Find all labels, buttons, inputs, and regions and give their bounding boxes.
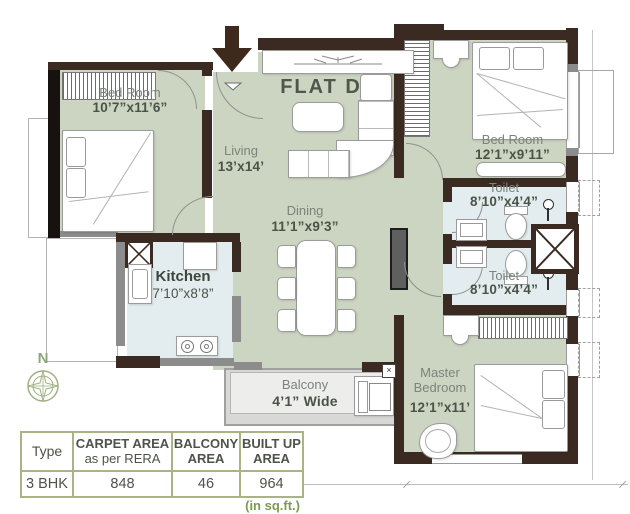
duct-x-icon: ×: [382, 364, 396, 378]
floor-plan: × FLAT D Bed Room 10’7”x11’6” Living 13’…: [0, 0, 630, 514]
kitchen-label: Kitchen: [138, 268, 228, 285]
shaft-x-icon: [531, 224, 579, 274]
wall-segment: [116, 242, 125, 346]
bedroom2-label: Bed Room: [455, 133, 570, 147]
north-label: N: [30, 350, 56, 367]
value-balcony-area: 46: [173, 472, 241, 496]
header-builtup-line2: AREA: [253, 452, 290, 467]
wall-segment: [234, 362, 262, 370]
header-builtup-line1: BUILT UP: [242, 437, 301, 452]
pillow: [513, 47, 544, 70]
dresser: [443, 315, 479, 336]
master-bedroom-label2: Bedroom: [398, 381, 482, 395]
wash-basin: [456, 219, 487, 241]
value-builtup-area: 964: [241, 472, 302, 496]
dimension-line: [290, 484, 628, 485]
wall-segment: [48, 62, 60, 238]
wardrobe: [478, 317, 568, 339]
exterior-ledge: [28, 118, 50, 238]
chair: [337, 245, 356, 268]
pillow: [66, 137, 86, 167]
bedroom1-label: Bed Room: [60, 86, 200, 100]
shelf-ledge: [476, 162, 566, 177]
plant-icon: [264, 54, 412, 68]
wall-segment: [232, 242, 241, 272]
compass-icon: [25, 368, 61, 404]
area-table-header-row: Type CARPET AREA as per RERA BALCONY ARE…: [22, 433, 302, 470]
living-label: Living: [196, 144, 286, 158]
door-swing-marker: [224, 78, 242, 87]
dresser: [433, 40, 469, 59]
refrigerator: [183, 242, 217, 270]
chair: [337, 277, 356, 300]
unit-footnote: (in sq.ft.): [198, 498, 300, 513]
stove-icon: [176, 336, 218, 356]
wall-segment: [48, 62, 196, 70]
chair: [277, 277, 296, 300]
sliding-door-panel: [390, 228, 408, 290]
balcony-label: Balcony: [250, 378, 360, 392]
area-table-data-row: 3 BHK 848 46 964: [22, 470, 302, 496]
chair: [277, 309, 296, 332]
flat-title: FLAT D: [258, 76, 384, 99]
wall-segment: [258, 38, 414, 50]
dining-table: [296, 240, 336, 336]
wash-basin: [456, 246, 487, 268]
dining-dims: 11’1”x9’3”: [260, 219, 350, 234]
coffee-table: [292, 102, 344, 132]
value-carpet-area: 848: [74, 472, 173, 496]
value-type: 3 BHK: [22, 472, 74, 496]
master-bedroom-label: Master: [398, 366, 482, 380]
pillow: [66, 168, 86, 198]
balcony-dims: 4’1” Wide: [250, 393, 360, 409]
pillow: [542, 400, 565, 429]
entrance-arrow-icon: [212, 26, 252, 74]
sofa: [288, 150, 350, 178]
toilet2-dims: 8’10”x4’4”: [452, 282, 556, 297]
shower-icon: [547, 208, 549, 221]
wall-segment: [232, 296, 241, 342]
wall-segment: [443, 305, 578, 315]
toilet1-dims: 8’10”x4’4”: [452, 194, 556, 209]
header-builtup-area: BUILT UP AREA: [241, 433, 302, 470]
wall-segment: [116, 356, 160, 368]
armchair: [419, 423, 457, 459]
duct-outline: [578, 180, 600, 216]
pillow: [479, 47, 510, 70]
chair: [277, 245, 296, 268]
kitchen-dims: 7’10”x8’8”: [138, 286, 228, 301]
projection-outline: [578, 70, 614, 154]
header-carpet-area: CARPET AREA as per RERA: [74, 433, 173, 470]
wall-segment: [160, 358, 234, 366]
header-balcony-area: BALCONY AREA: [173, 433, 241, 470]
exterior-ledge: [46, 238, 118, 362]
header-type: Type: [22, 433, 74, 470]
duct-outline: [578, 342, 600, 378]
wall-segment: [202, 62, 212, 76]
duct-outline: [578, 288, 600, 318]
header-balcony-line1: BALCONY: [174, 437, 238, 452]
wall-segment: [443, 234, 452, 264]
washing-machine-icon: [354, 376, 394, 416]
bedroom2-dims: 12’1”x9’11”: [455, 147, 570, 162]
dining-label: Dining: [260, 204, 350, 218]
pillow: [542, 370, 565, 399]
living-dims: 13’x14’: [196, 159, 286, 174]
bedroom1-dims: 10’7”x11’6”: [60, 100, 200, 115]
master-bedroom-dims: 12’1”x11’: [398, 400, 482, 415]
header-carpet-line1: CARPET AREA: [76, 437, 169, 452]
wall-segment: [414, 30, 578, 40]
header-type-text: Type: [32, 443, 62, 459]
chair: [337, 309, 356, 332]
console-ledge: [262, 50, 414, 74]
wall-segment: [443, 187, 452, 202]
area-table: Type CARPET AREA as per RERA BALCONY ARE…: [20, 431, 304, 498]
header-carpet-line2: as per RERA: [85, 452, 161, 467]
header-balcony-line2: AREA: [188, 452, 225, 467]
